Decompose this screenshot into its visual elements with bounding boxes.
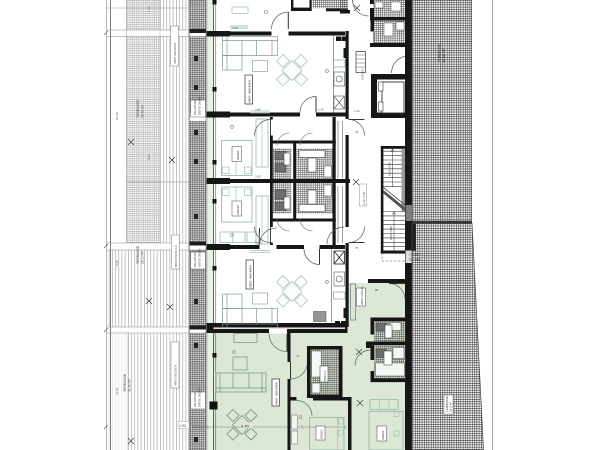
svg-text:75: 75 bbox=[355, 130, 359, 134]
svg-text:BAD 6.2: BAD 6.2 bbox=[323, 370, 327, 381]
svg-text:TERRASSE: TERRASSE bbox=[123, 373, 127, 392]
svg-text:75: 75 bbox=[355, 246, 359, 250]
svg-text:8.00: 8.00 bbox=[147, 154, 151, 160]
svg-text:10.35: 10.35 bbox=[115, 112, 119, 120]
svg-text:180/200: 180/200 bbox=[320, 429, 324, 439]
svg-text:ABSTURZSICH.: ABSTURZSICH. bbox=[173, 42, 177, 64]
svg-text:26.10 m²: 26.10 m² bbox=[141, 250, 145, 264]
svg-text:BRÜSTUNG 1.0: BRÜSTUNG 1.0 bbox=[174, 245, 178, 267]
svg-text:3.85: 3.85 bbox=[255, 108, 261, 112]
svg-text:1.20: 1.20 bbox=[354, 109, 360, 113]
svg-text:1.92: 1.92 bbox=[179, 424, 186, 428]
svg-text:1.15: 1.15 bbox=[318, 108, 324, 112]
svg-text:ENTW. DN100: ENTW. DN100 bbox=[198, 388, 202, 407]
svg-text:28.60 m²: 28.60 m² bbox=[141, 104, 145, 118]
svg-text:86: 86 bbox=[375, 288, 379, 292]
svg-text:1.20 / 2.20: 1.20 / 2.20 bbox=[362, 191, 366, 205]
svg-text:AUFZUG: AUFZUG bbox=[361, 69, 365, 81]
svg-text:28.2 m²: 28.2 m² bbox=[449, 402, 453, 412]
svg-text:FALLROHR: FALLROHR bbox=[193, 252, 197, 267]
svg-text:ENTW. DN100: ENTW. DN100 bbox=[198, 248, 202, 267]
svg-text:16x17.5/28: 16x17.5/28 bbox=[389, 226, 393, 240]
svg-text:180/200: 180/200 bbox=[236, 205, 240, 215]
svg-text:3.85: 3.85 bbox=[255, 175, 261, 179]
svg-text:ABST. WOHNEN: ABST. WOHNEN bbox=[249, 265, 253, 288]
svg-text:2.26: 2.26 bbox=[232, 26, 238, 30]
svg-text:8.45: 8.45 bbox=[241, 424, 250, 429]
svg-text:ABST. KÜCHE: ABST. KÜCHE bbox=[360, 287, 364, 305]
svg-text:16x17.5/28: 16x17.5/28 bbox=[388, 162, 392, 176]
svg-text:TERRASSE: TERRASSE bbox=[438, 43, 442, 63]
svg-text:1.35: 1.35 bbox=[147, 6, 151, 12]
svg-text:76: 76 bbox=[296, 354, 300, 358]
svg-text:180/200: 180/200 bbox=[381, 430, 385, 440]
svg-text:36.80 m²: 36.80 m² bbox=[442, 48, 446, 63]
svg-text:FALLROHR: FALLROHR bbox=[193, 100, 197, 115]
svg-text:TERRASSE: TERRASSE bbox=[136, 99, 140, 118]
svg-text:31.40 m²: 31.40 m² bbox=[128, 378, 132, 392]
svg-text:ABST. WOHNEN: ABST. WOHNEN bbox=[248, 80, 252, 103]
svg-text:180/200: 180/200 bbox=[236, 150, 240, 160]
svg-text:TERRASSE: TERRASSE bbox=[136, 245, 140, 264]
svg-text:ENTW. DN100: ENTW. DN100 bbox=[198, 96, 202, 115]
svg-text:FALLROHR: FALLROHR bbox=[193, 392, 197, 407]
svg-text:ABSTURZSICH.: ABSTURZSICH. bbox=[174, 364, 178, 386]
svg-text:ABST. WOHNEN: ABST. WOHNEN bbox=[275, 382, 279, 405]
svg-text:3.85: 3.85 bbox=[255, 241, 261, 245]
